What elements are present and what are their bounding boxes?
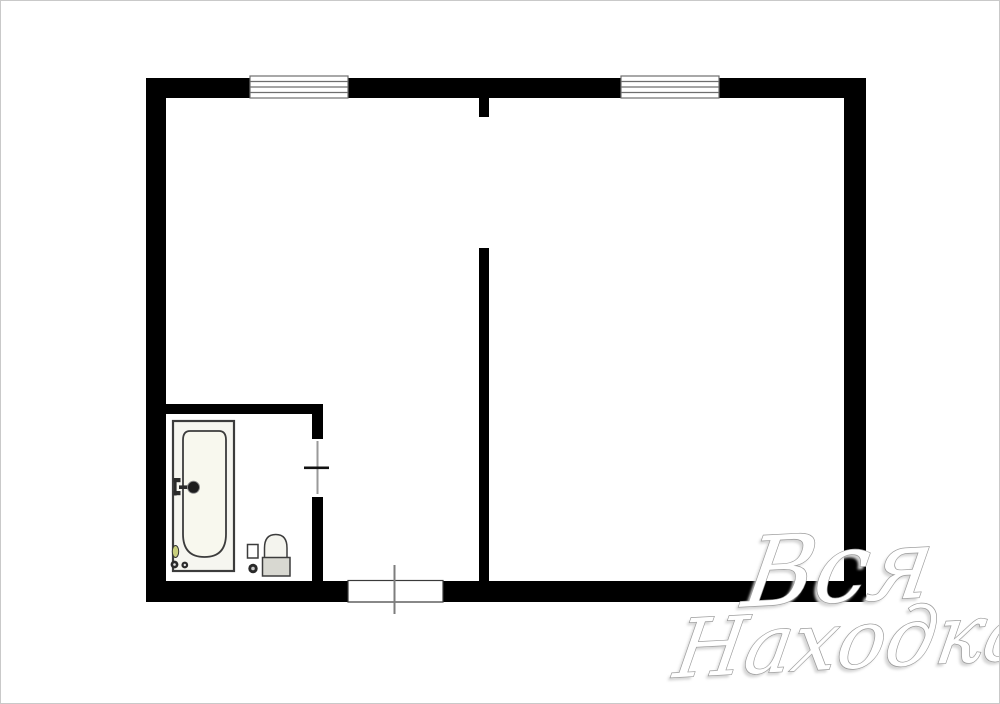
toilet-tank (263, 558, 291, 577)
faucet-knob (188, 481, 200, 493)
watermark: Вся Находка Вся Находка (654, 502, 1000, 701)
floor-plan-drawing: Вся Находка Вся Находка (1, 1, 1000, 704)
bathroom-wall-top (164, 404, 323, 414)
bathtub (171, 421, 234, 571)
soap-dish (172, 546, 178, 558)
partition-wall-stub (479, 98, 489, 117)
watermark-line2: Находка (667, 585, 1000, 698)
drain-knob-right-center (184, 564, 186, 566)
bathtub-basin (183, 431, 226, 557)
balcony-door (348, 565, 443, 614)
toilet-bowl (265, 535, 288, 560)
faucet-bracket-bar (174, 478, 177, 496)
floor-drain-center (251, 567, 255, 571)
bathroom-door-tick (304, 467, 329, 470)
outer-wall-left (146, 78, 166, 602)
bathroom-door (304, 439, 329, 497)
window-right (621, 76, 719, 98)
partition-wall-main (479, 248, 489, 581)
toilet (248, 535, 291, 577)
floor-plan-page: Вся Находка Вся Находка (0, 0, 1000, 704)
drain-knob-left-center (173, 563, 176, 566)
window-left (250, 76, 348, 98)
bathroom-small-fixture (248, 545, 259, 559)
